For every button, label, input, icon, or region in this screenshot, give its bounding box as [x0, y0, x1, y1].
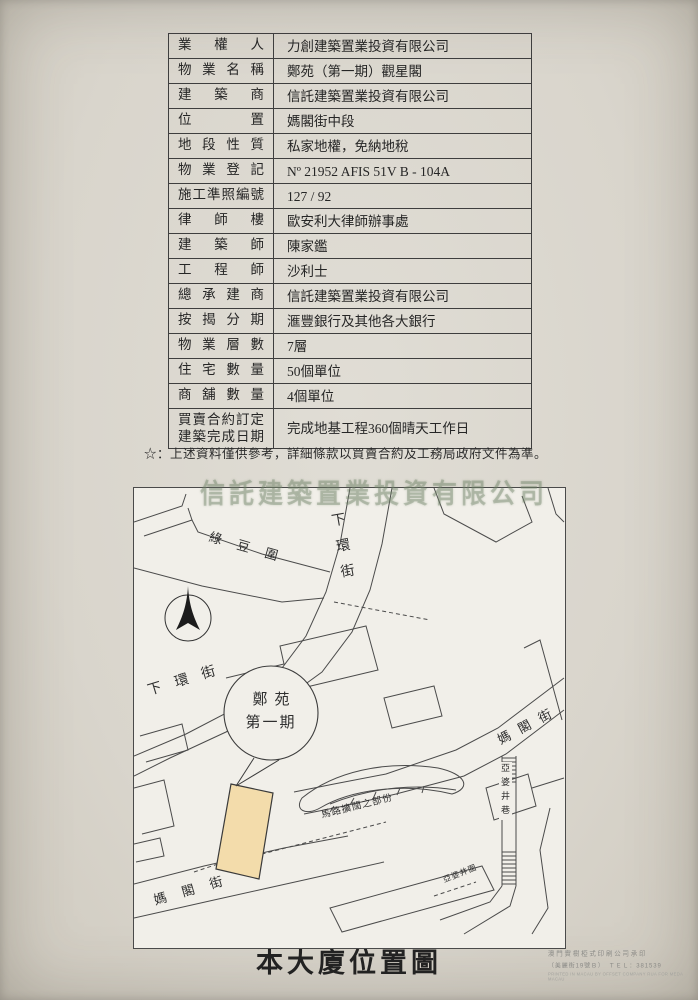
row-label: 位置: [169, 109, 274, 133]
row-value: 127 / 92: [274, 184, 531, 208]
table-row: 業權人力創建築置業投資有限公司: [169, 34, 531, 59]
building-name-line2: 第一期: [224, 712, 318, 735]
table-row: 工程師沙利士: [169, 259, 531, 284]
row-label: 物業登記: [169, 159, 274, 183]
printer-line3: PRINTED IN MACAU BY OFFSET COMPANY RUA F…: [548, 972, 684, 981]
table-row: 律師樓歐安利大律師辦事處: [169, 209, 531, 234]
printer-imprint: 澳門實樹椏式印刷公司承印 （美麗街19號Ｂ） ＴＥＬ：381539 PRINTE…: [548, 949, 684, 981]
table-row: 物業層數7層: [169, 334, 531, 359]
row-value: 7層: [274, 334, 531, 358]
table-row: 位置媽閣街中段: [169, 109, 531, 134]
table-row: 物業登記Nº 21952 AFIS 51V B - 104A: [169, 159, 531, 184]
row-value: 沙利士: [274, 259, 531, 283]
row-label: 律師樓: [169, 209, 274, 233]
printer-line2: （美麗街19號Ｂ） ＴＥＬ：381539: [548, 960, 684, 969]
row-label: 商舖數量: [169, 384, 274, 408]
table-row: 住宅數量50個單位: [169, 359, 531, 384]
row-value: 4個單位: [274, 384, 531, 408]
building-name-line1: 鄭苑: [224, 689, 318, 712]
row-value: 完成地基工程360個晴天工作日: [274, 409, 531, 448]
property-info-table: 業權人力創建築置業投資有限公司 物業名稱鄭苑（第一期）觀星閣 建築商信託建築置業…: [168, 33, 532, 449]
row-label: 工程師: [169, 259, 274, 283]
table-row: 建築商信託建築置業投資有限公司: [169, 84, 531, 109]
row-value: 滙豐銀行及其他各大銀行: [274, 309, 531, 333]
row-label: 總承建商: [169, 284, 274, 308]
disclaimer-note: ☆：上述資料僅供參考，詳細條款以買賣合約及工務局政府文件為準。: [144, 443, 574, 462]
row-value: 歐安利大律師辦事處: [274, 209, 531, 233]
row-value: 信託建築置業投資有限公司: [274, 84, 531, 108]
row-label: 施工準照編號: [169, 184, 274, 208]
table-row: 施工準照編號127 / 92: [169, 184, 531, 209]
scanned-page: 業權人力創建築置業投資有限公司 物業名稱鄭苑（第一期）觀星閣 建築商信託建築置業…: [0, 0, 698, 1000]
lane-label-a-po-cheng: 亞婆井巷: [499, 762, 512, 820]
row-label: 物業層數: [169, 334, 274, 358]
row-value: 50個單位: [274, 359, 531, 383]
row-value: 陳家鑑: [274, 234, 531, 258]
row-value: 力創建築置業投資有限公司: [274, 34, 531, 58]
row-label: 物業名稱: [169, 59, 274, 83]
row-label: 住宅數量: [169, 359, 274, 383]
building-callout-label: 鄭苑 第一期: [224, 689, 318, 736]
table-row: 按揭分期滙豐銀行及其他各大銀行: [169, 309, 531, 334]
location-map: 綠豆圍 下環街 下環街 媽閣街 媽閣街 亞婆井巷 亞婆井圍 馬路擴闊之部份 鄭苑…: [133, 487, 566, 949]
table-row: 商舖數量4個單位: [169, 384, 531, 409]
table-row: 總承建商信託建築置業投資有限公司: [169, 284, 531, 309]
row-label: 業權人: [169, 34, 274, 58]
row-label: 建築商: [169, 84, 274, 108]
table-row: 建築師陳家鑑: [169, 234, 531, 259]
row-label: 地段性質: [169, 134, 274, 158]
row-value: 私家地權，免納地稅: [274, 134, 531, 158]
printer-line1: 澳門實樹椏式印刷公司承印: [548, 949, 684, 958]
table-row: 地段性質私家地權，免納地稅: [169, 134, 531, 159]
table-row: 物業名稱鄭苑（第一期）觀星閣: [169, 59, 531, 84]
row-label: 建築師: [169, 234, 274, 258]
north-compass-icon: [165, 586, 211, 641]
row-value: 媽閣街中段: [274, 109, 531, 133]
row-label: 買賣合約訂定 建築完成日期: [169, 409, 274, 448]
table-row: 買賣合約訂定 建築完成日期完成地基工程360個晴天工作日: [169, 409, 531, 448]
row-value: 信託建築置業投資有限公司: [274, 284, 531, 308]
row-value: 鄭苑（第一期）觀星閣: [274, 59, 531, 83]
bleed-through-text: 信託建築置業投資有限公司: [200, 473, 560, 512]
row-label: 按揭分期: [169, 309, 274, 333]
highlighted-building: [216, 784, 273, 879]
row-value: Nº 21952 AFIS 51V B - 104A: [274, 159, 531, 183]
